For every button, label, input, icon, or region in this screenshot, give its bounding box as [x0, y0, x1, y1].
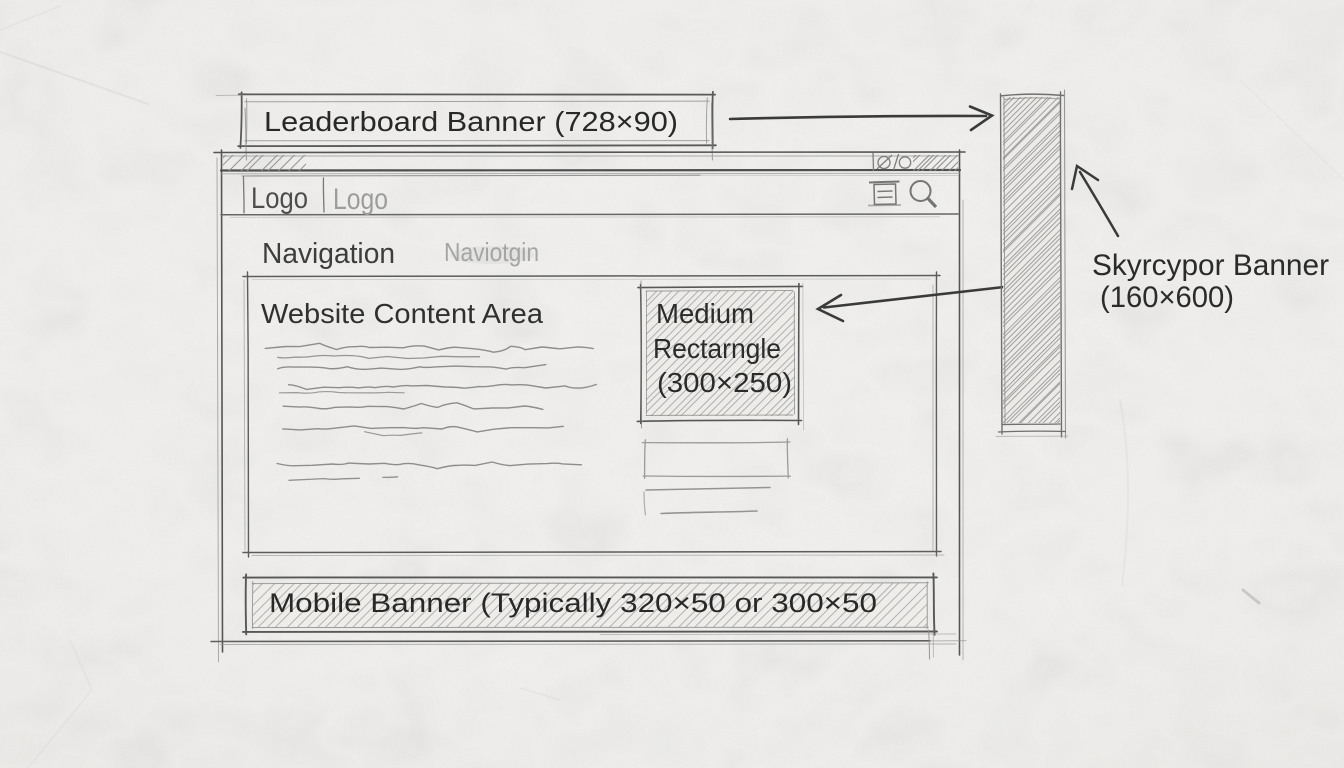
svg-text:Leaderboard Banner (728×90): Leaderboard Banner (728×90)	[264, 106, 678, 137]
svg-text:Medium: Medium	[656, 298, 754, 329]
svg-text:Logo: Logo	[333, 183, 388, 216]
svg-text:Rectarngle: Rectarngle	[653, 333, 781, 364]
svg-text:Logo: Logo	[251, 182, 308, 215]
svg-text:Naviotgin: Naviotgin	[444, 237, 539, 267]
svg-text:Website Content Area: Website Content Area	[261, 298, 543, 329]
svg-text:Navigation: Navigation	[262, 238, 395, 270]
svg-text:(300×250): (300×250)	[657, 367, 792, 398]
svg-text:(160×600): (160×600)	[1100, 281, 1234, 314]
svg-text:Skyrcypor Banner: Skyrcypor Banner	[1092, 249, 1329, 282]
svg-text:Mobile Banner (Typically 320×5: Mobile Banner (Typically 320×50 or 300×5…	[269, 588, 877, 618]
